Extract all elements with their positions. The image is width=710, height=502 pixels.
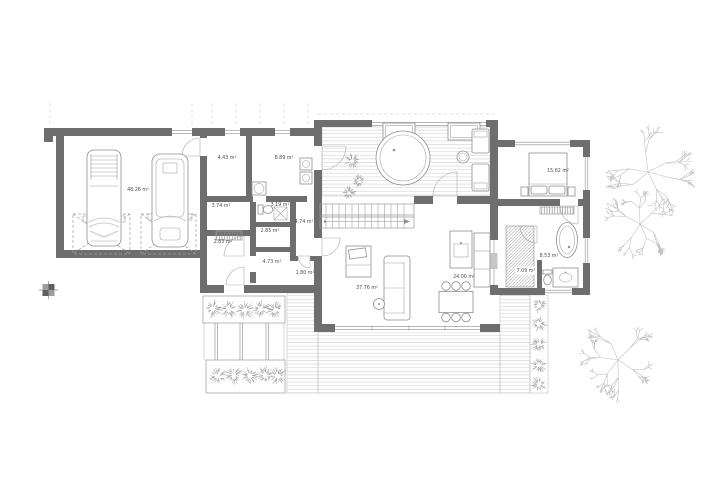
bedroom — [521, 153, 575, 196]
sliding-glass-wall — [335, 324, 480, 332]
floor-plan-sheet: 48.26 m² 4.43 m² 8.89 m² 3.74 m² 3.19 m²… — [0, 0, 710, 502]
room-area-label: 1.80 m² — [296, 270, 315, 276]
room-area-label: 4.73 m² — [263, 259, 282, 265]
pocket-door-kitchen — [490, 240, 498, 285]
window — [583, 157, 590, 190]
tall-cabinets — [474, 233, 490, 287]
room-area-label: 8.89 m² — [275, 155, 294, 161]
room-area-label: 24.00 m² — [453, 274, 475, 280]
nightstand — [521, 187, 528, 196]
window — [583, 238, 590, 263]
dryer — [300, 172, 312, 184]
bed — [529, 153, 567, 196]
coffee-table — [374, 299, 385, 310]
car-suv — [83, 150, 125, 246]
shoe-rack — [216, 231, 242, 240]
floor-plan-drawing: 48.26 m² 4.43 m² 8.89 m² 3.74 m² 3.19 m²… — [0, 0, 710, 502]
room-area-label: 7.09 m² — [517, 268, 536, 274]
wardrobe-shelves — [506, 226, 534, 287]
window — [545, 288, 572, 295]
dining-set — [439, 282, 473, 322]
radiator — [540, 207, 574, 214]
upper-terrace — [322, 123, 490, 197]
window — [172, 128, 192, 136]
room-area-label: 3.19 m² — [271, 202, 290, 208]
nightstand — [568, 187, 575, 196]
vanity — [553, 268, 578, 287]
room-area-label: 37.76 m² — [356, 285, 378, 291]
daybed — [346, 246, 371, 277]
room-area-label: 4.43 m² — [218, 155, 237, 161]
room-area-label: 2.85 m² — [261, 228, 280, 234]
room-area-label: 15.62 m² — [547, 168, 569, 174]
room-area-label: 4.74 m² — [295, 219, 314, 225]
bathtub — [557, 223, 578, 258]
room-area-label: 3.74 m² — [212, 203, 231, 209]
washing-machine — [300, 158, 312, 170]
window — [225, 128, 240, 136]
window — [275, 128, 290, 136]
room-area-label: 8.53 m² — [540, 253, 559, 259]
car-van — [148, 154, 192, 247]
wardrobe — [506, 226, 537, 287]
kitchen-island — [450, 231, 472, 268]
window — [515, 140, 570, 147]
room-area-label: 48.26 m² — [127, 187, 149, 193]
room-area-label: 2.83 m² — [214, 239, 233, 245]
sofa — [384, 256, 410, 320]
hot-tub — [376, 131, 430, 185]
toilet — [543, 270, 552, 285]
